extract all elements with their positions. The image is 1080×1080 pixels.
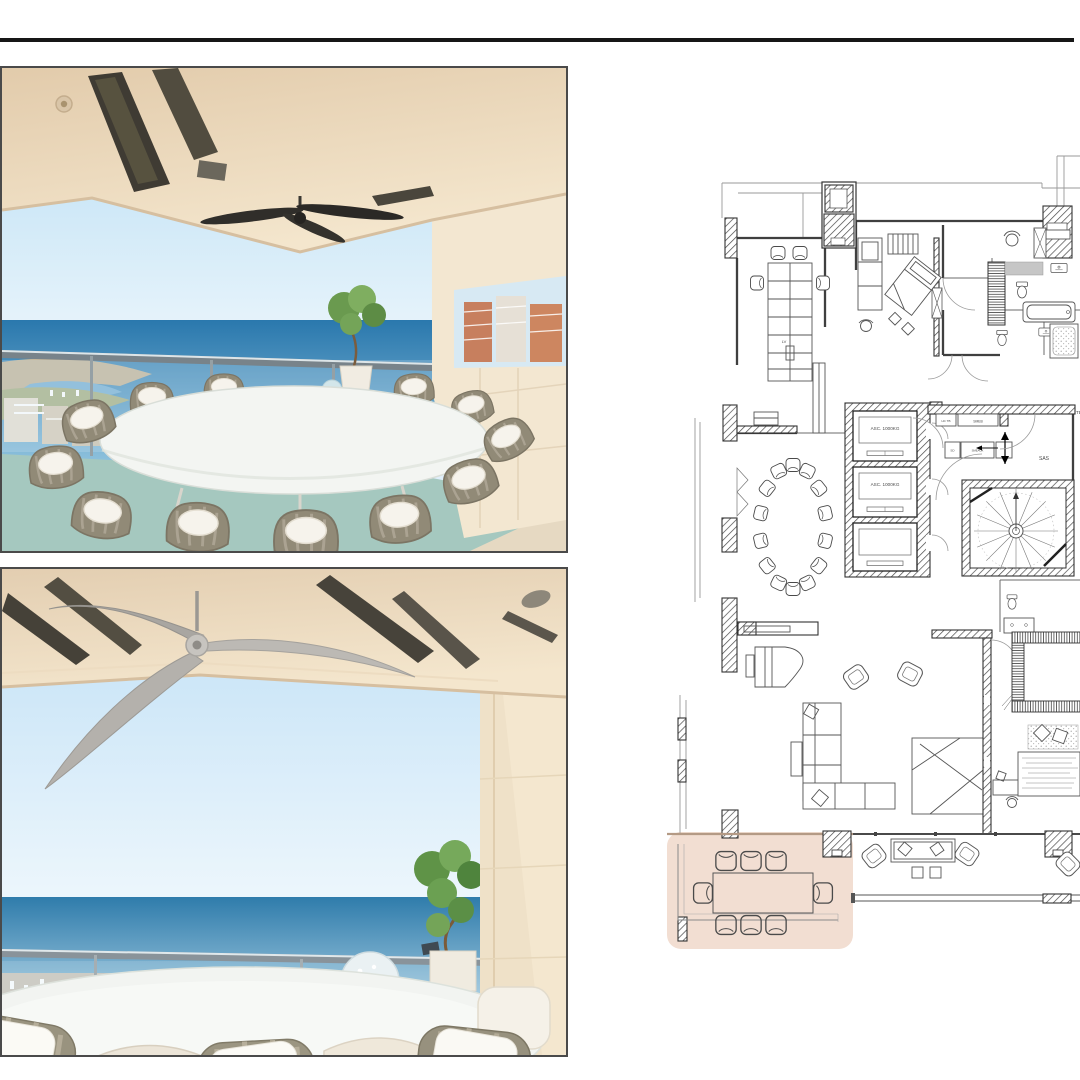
elevator-2: ASC. 1000KG [853,467,917,517]
elevator-3 [853,523,917,571]
kitchen: LV [737,247,830,434]
elevator-block: ASC. 1000KG ASC. 1000KG [845,403,948,577]
floor-plan: LV [660,150,1080,950]
hc-tb-label: HC TB [942,419,951,423]
elevator-1: ASC. 1000KG [853,411,917,461]
elevator-2-label: ASC. 1000KG [871,482,900,487]
terrasse-clipped-label: TE [1076,410,1080,415]
master-suite-right [1002,595,1080,796]
photo-terrace-dining-2 [0,567,568,1057]
oval-seating-ring [753,459,833,596]
floor-plan-panel: LV [660,150,1080,950]
music-corner [738,622,818,687]
ceiling [2,569,566,697]
spiral-staircase [962,480,1074,576]
living-room [791,630,1019,834]
elevator-1-label: ASC. 1000KG [871,426,900,431]
sas-label: SAS [1039,456,1050,462]
photo-terrace-dining-1 [0,66,568,553]
brochure-page: LV [0,0,1080,1080]
terrace-photo-1-scene [2,68,566,551]
upper-terrace-outline [722,156,1080,238]
kitchen-lv-label: LV [782,339,787,344]
terrace-photo-2-scene [2,569,566,1055]
smeb-label: SMEB [973,420,983,424]
bedroom-top [858,234,988,381]
top-divider-rule [0,38,1074,42]
